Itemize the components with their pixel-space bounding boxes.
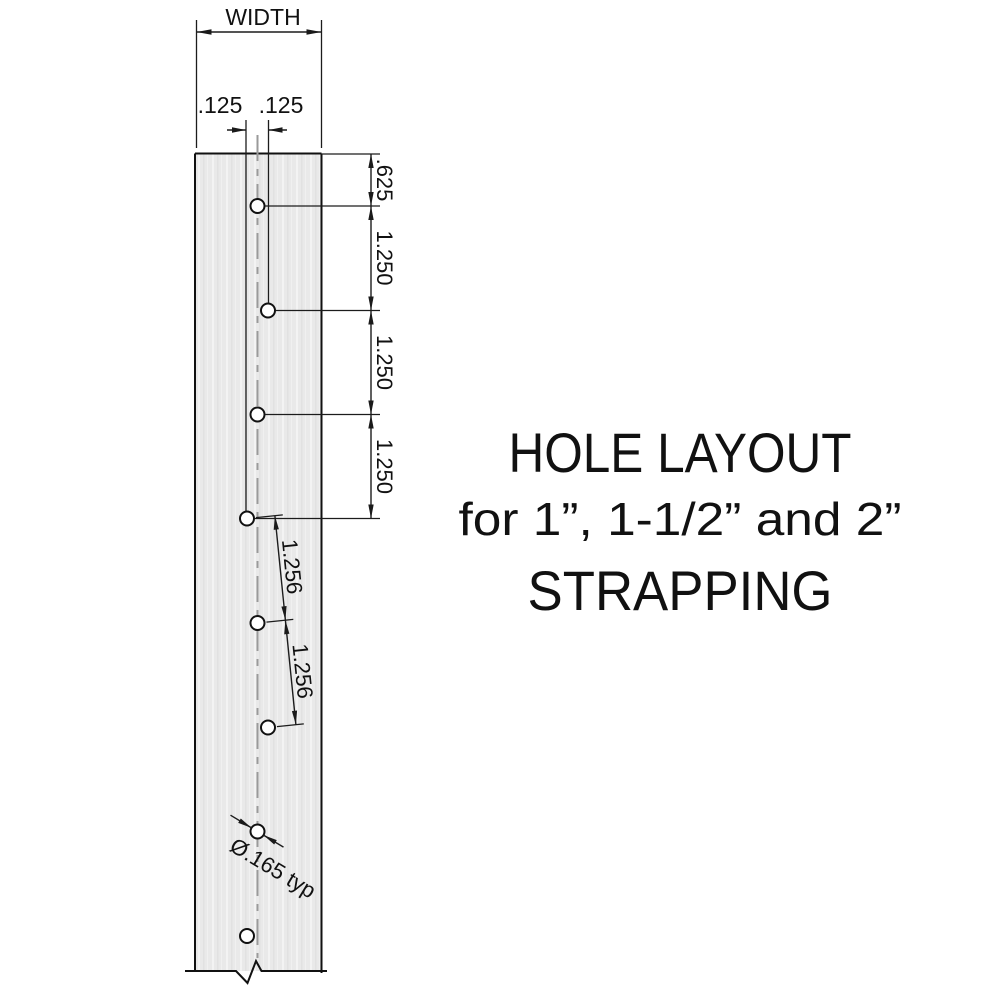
offset-left-label: .125 xyxy=(198,92,243,118)
dim-1250-label-2: 1.250 xyxy=(372,335,397,390)
dim-1250-label-1: 1.250 xyxy=(372,230,397,285)
hole-5 xyxy=(251,616,265,630)
width-dim-label: WIDTH xyxy=(225,4,300,30)
technical-drawing: WIDTH .125 .125 .625 1.250 1.250 1.250 xyxy=(0,0,1000,1000)
arrowhead xyxy=(197,29,212,35)
arrowhead xyxy=(368,297,373,311)
offset-right-label: .125 xyxy=(259,92,304,118)
hole-7 xyxy=(251,825,265,839)
hole-6 xyxy=(261,721,275,735)
arrowhead xyxy=(307,29,322,35)
title-line-2: for 1”, 1-1/2” and 2” xyxy=(459,493,902,545)
arrowhead xyxy=(368,505,373,519)
hole-3 xyxy=(251,408,265,422)
arrowhead xyxy=(368,206,373,220)
title-line-1: HOLE LAYOUT xyxy=(509,421,852,484)
page-background: WIDTH .125 .125 .625 1.250 1.250 1.250 xyxy=(0,0,1000,1000)
arrowhead xyxy=(232,127,246,132)
arrowhead xyxy=(368,415,373,429)
dim-625-label: .625 xyxy=(372,159,397,202)
title-line-3: STRAPPING xyxy=(528,559,833,622)
arrowhead xyxy=(368,401,373,415)
hole-2 xyxy=(261,304,275,318)
arrowhead xyxy=(368,311,373,325)
hole-8 xyxy=(240,929,254,943)
hole-1 xyxy=(251,199,265,213)
arrowhead xyxy=(269,127,283,132)
drawing-title: HOLE LAYOUT for 1”, 1-1/2” and 2” STRAPP… xyxy=(459,421,902,622)
hole-4 xyxy=(240,512,254,526)
dim-1250-label-3: 1.250 xyxy=(372,439,397,494)
width-dimension: WIDTH xyxy=(197,4,322,148)
